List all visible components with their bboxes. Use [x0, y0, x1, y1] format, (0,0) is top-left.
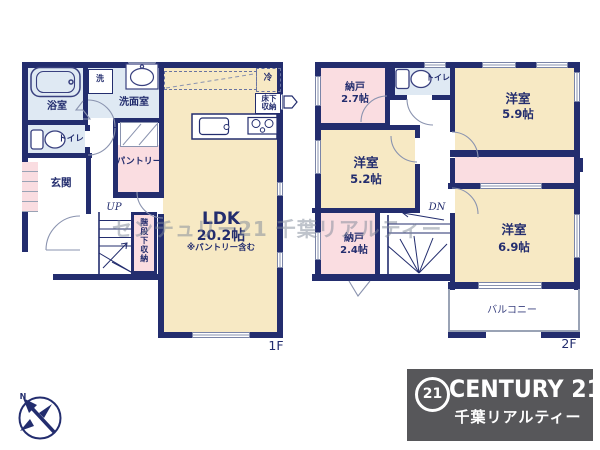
label-room-b: 洋室 — [353, 156, 378, 170]
label-fridge: 冷 — [264, 74, 273, 83]
door-arrow-icon — [284, 96, 297, 108]
label-washroom: 洗面室 — [119, 97, 149, 108]
floor-tag-1f: 1F — [268, 339, 283, 353]
kitchen-counter-icon — [192, 114, 277, 139]
brand-banner: 21 CENTURY 21 千葉リアルティー — [407, 369, 593, 441]
floor-tag-2f: 2F — [561, 337, 576, 351]
label-washer: 洗 — [96, 75, 104, 84]
hatch-lines — [123, 124, 157, 145]
label-room-c-size: 6.9帖 — [498, 241, 530, 254]
brand-subtitle: 千葉リアルティー — [443, 406, 593, 427]
label-storage-a: 納戸 — [345, 82, 365, 93]
label-storage-a-size: 2.7帖 — [341, 94, 369, 105]
label-toilet-1f: トイレ — [58, 135, 84, 144]
label-storage-b-size: 2.4帖 — [340, 245, 368, 256]
watermark-text: センチュリー21 千葉リアルティー — [112, 213, 442, 242]
label-toilet-2f: トイレ — [426, 74, 450, 83]
label-room-a: 洋室 — [505, 92, 530, 106]
label-entrance: 玄関 — [51, 178, 72, 190]
floorplan-page: 浴室 洗 洗面室 トイレ 玄関 パントリー UP 階段下収納 LDK 20.2帖… — [0, 0, 600, 450]
compass-icon — [20, 398, 61, 439]
label-dn: DN — [429, 202, 446, 213]
bifold-bath-door — [76, 101, 90, 119]
label-room-a-size: 5.9帖 — [502, 108, 534, 121]
brand-name: CENTURY 21 — [449, 375, 581, 403]
storage-2-4-door — [349, 281, 370, 296]
label-pantry: パントリー — [116, 158, 161, 168]
label-up: UP — [106, 202, 121, 213]
label-floor-storage: 床下収納 — [258, 95, 280, 112]
label-room-c: 洋室 — [501, 223, 526, 237]
label-balcony: バルコニー — [487, 305, 537, 316]
bathtub-icon — [31, 68, 80, 97]
sink-icon — [126, 64, 158, 89]
label-bathroom: 浴室 — [47, 101, 67, 112]
compass-north-label: N — [20, 393, 27, 402]
label-room-b-size: 5.2帖 — [350, 173, 382, 186]
cabinet-diagonal-line — [166, 74, 254, 88]
label-ldk-note: ※パントリー含む — [187, 244, 255, 253]
